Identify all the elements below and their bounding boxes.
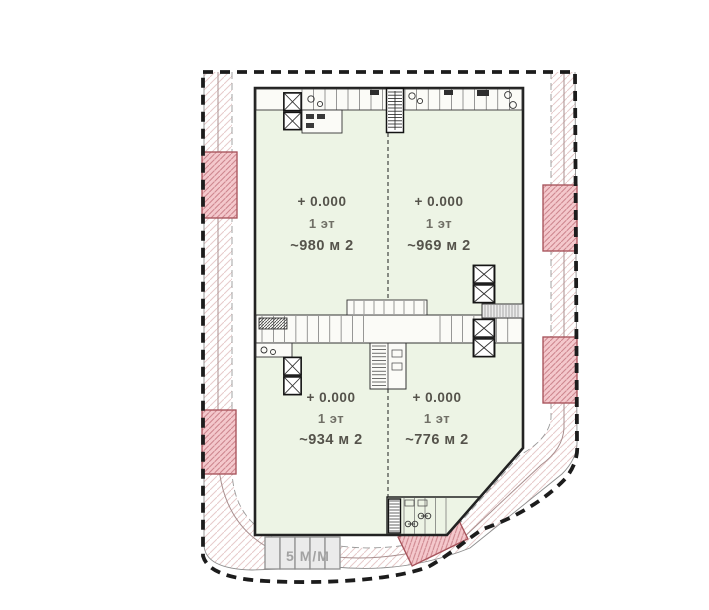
shaft-hatched: [259, 318, 287, 329]
parking-zone-right-upper: [543, 185, 577, 251]
elevator-core: [284, 93, 301, 111]
parking-stall: [265, 537, 280, 569]
core-block-upper: [347, 300, 427, 315]
site-plan-canvas: 5 М/М + 0.000 1 эт ~980 м 2 + 0.000 1 эт…: [0, 0, 709, 610]
svg-text:1 эт: 1 эт: [426, 216, 452, 231]
svg-text:1 эт: 1 эт: [309, 216, 335, 231]
svg-text:~776 м 2: ~776 м 2: [405, 432, 469, 448]
parking-stalls-label: 5 М/М: [286, 548, 330, 564]
parking-zone-left-lower: [202, 410, 236, 474]
elevator-core: [284, 112, 301, 129]
parking-zone-left-upper: [202, 152, 237, 218]
elevator-core: [284, 377, 301, 395]
stair-core-bottom: [389, 499, 401, 533]
svg-text:+ 0.000: + 0.000: [298, 194, 347, 209]
svg-text:~980 м 2: ~980 м 2: [290, 238, 354, 254]
svg-text:+ 0.000: + 0.000: [415, 194, 464, 209]
svg-text:1 эт: 1 эт: [424, 411, 450, 426]
stair-core-top: [387, 89, 404, 133]
site-plan-drawing: 5 М/М + 0.000 1 эт ~980 м 2 + 0.000 1 эт…: [0, 0, 709, 610]
top-rooms-annex: [302, 110, 342, 133]
parking-zone-right-lower: [543, 337, 577, 403]
svg-text:+ 0.000: + 0.000: [307, 390, 356, 405]
svg-text:1 эт: 1 эт: [318, 411, 344, 426]
core-block-lower: [370, 343, 406, 389]
elevator-core: [284, 357, 301, 375]
svg-text:~934 м 2: ~934 м 2: [299, 432, 363, 448]
svg-text:~969 м 2: ~969 м 2: [407, 238, 471, 254]
svg-text:+ 0.000: + 0.000: [413, 390, 462, 405]
